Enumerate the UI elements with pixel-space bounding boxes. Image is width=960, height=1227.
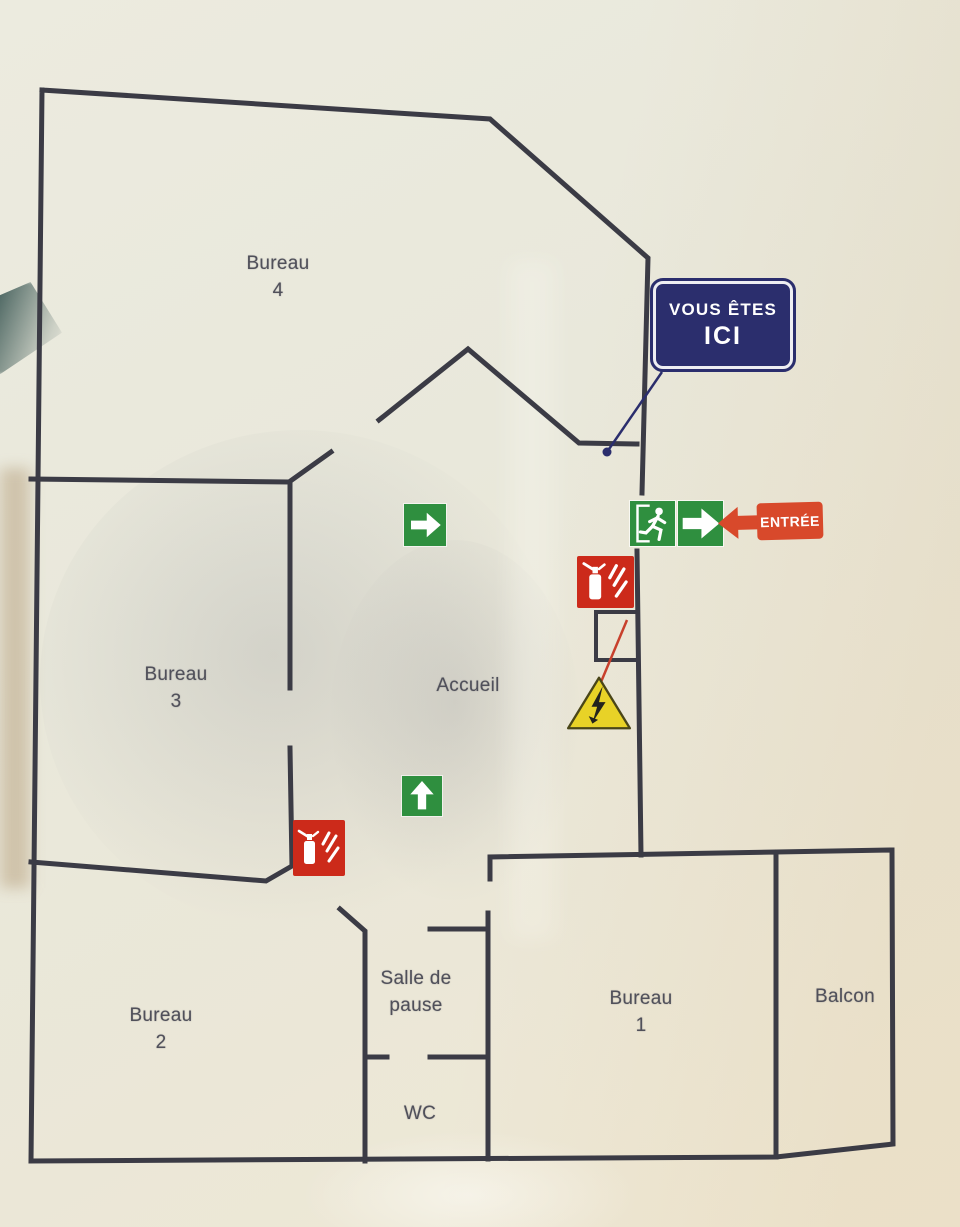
entrance-sign: ENTRÉE xyxy=(718,502,824,542)
exit-running-man-icon xyxy=(630,501,675,546)
exit-arrow-right-icon xyxy=(678,501,723,546)
room-name: Bureau xyxy=(561,985,721,1012)
entrance-arrow-left-icon xyxy=(718,504,761,541)
room-number: 4 xyxy=(198,277,358,304)
room-label-accueil: Accueil xyxy=(388,672,548,699)
entrance-label: ENTRÉE xyxy=(757,502,824,541)
room-number: 3 xyxy=(96,688,256,715)
room-name: Bureau xyxy=(198,250,358,277)
room-label-bureau-1: Bureau 1 xyxy=(561,985,721,1039)
direction-arrow-right-icon xyxy=(404,504,446,546)
you-are-here-line1: VOUS ÊTES xyxy=(669,300,777,320)
room-label-bureau-2: Bureau 2 xyxy=(81,1002,241,1056)
room-label-bureau-4: Bureau 4 xyxy=(198,250,358,304)
room-number: 2 xyxy=(81,1029,241,1056)
direction-arrow-up-icon xyxy=(402,776,442,816)
fire-extinguisher-icon xyxy=(293,820,345,876)
electrical-panel xyxy=(596,612,638,660)
room-label-wc: WC xyxy=(380,1100,460,1127)
room-name: Balcon xyxy=(785,983,905,1010)
room-name: Accueil xyxy=(388,672,548,699)
room-label-salle-de-pause: Salle de pause xyxy=(356,965,476,1019)
you-are-here-sign: VOUS ÊTES ICI xyxy=(653,281,793,369)
fire-extinguisher-icon xyxy=(577,556,634,608)
room-label-bureau-3: Bureau 3 xyxy=(96,661,256,715)
electrical-hazard-icon xyxy=(566,674,632,737)
room-name-line2: pause xyxy=(356,992,476,1019)
room-name: Bureau xyxy=(81,1002,241,1029)
emergency-exit-sign xyxy=(630,501,723,546)
room-label-balcon: Balcon xyxy=(785,983,905,1010)
hazard-pointer-line xyxy=(601,620,627,682)
room-name: Bureau xyxy=(96,661,256,688)
room-name-line1: Salle de xyxy=(356,965,476,992)
you-are-here-line2: ICI xyxy=(704,322,742,351)
room-name: WC xyxy=(380,1100,460,1127)
evacuation-plan-photo: Bureau 4 Bureau 3 Accueil Bureau 2 Salle… xyxy=(0,0,960,1227)
room-number: 1 xyxy=(561,1012,721,1039)
